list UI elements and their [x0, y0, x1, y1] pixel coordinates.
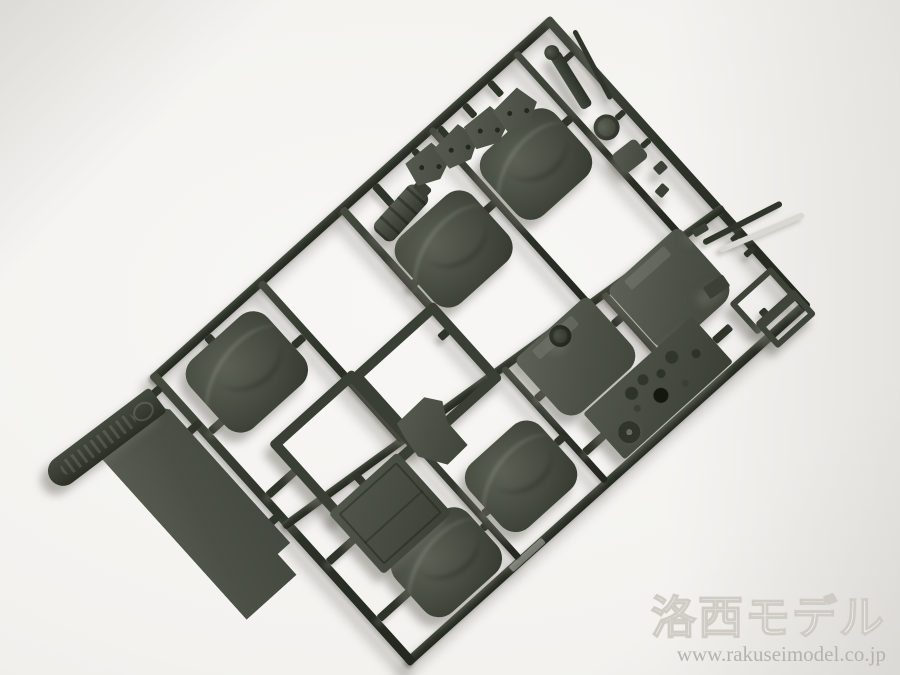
watermark: 洛西モデル www.rakuseimodel.co.jp [651, 595, 886, 667]
gate-stub [265, 469, 297, 499]
gate-stub [462, 102, 478, 119]
watermark-title: 洛西モデル [651, 595, 886, 640]
gate-stub [487, 80, 504, 98]
gate-stub [326, 537, 357, 566]
small-block-2 [653, 160, 669, 175]
gate-stub [376, 589, 411, 622]
watermark-url: www.rakuseimodel.co.jp [651, 642, 886, 667]
sprue-frame-group [149, 15, 811, 666]
photo-backdrop: 洛西モデル www.rakuseimodel.co.jp [0, 0, 900, 675]
small-block-3 [654, 183, 669, 199]
